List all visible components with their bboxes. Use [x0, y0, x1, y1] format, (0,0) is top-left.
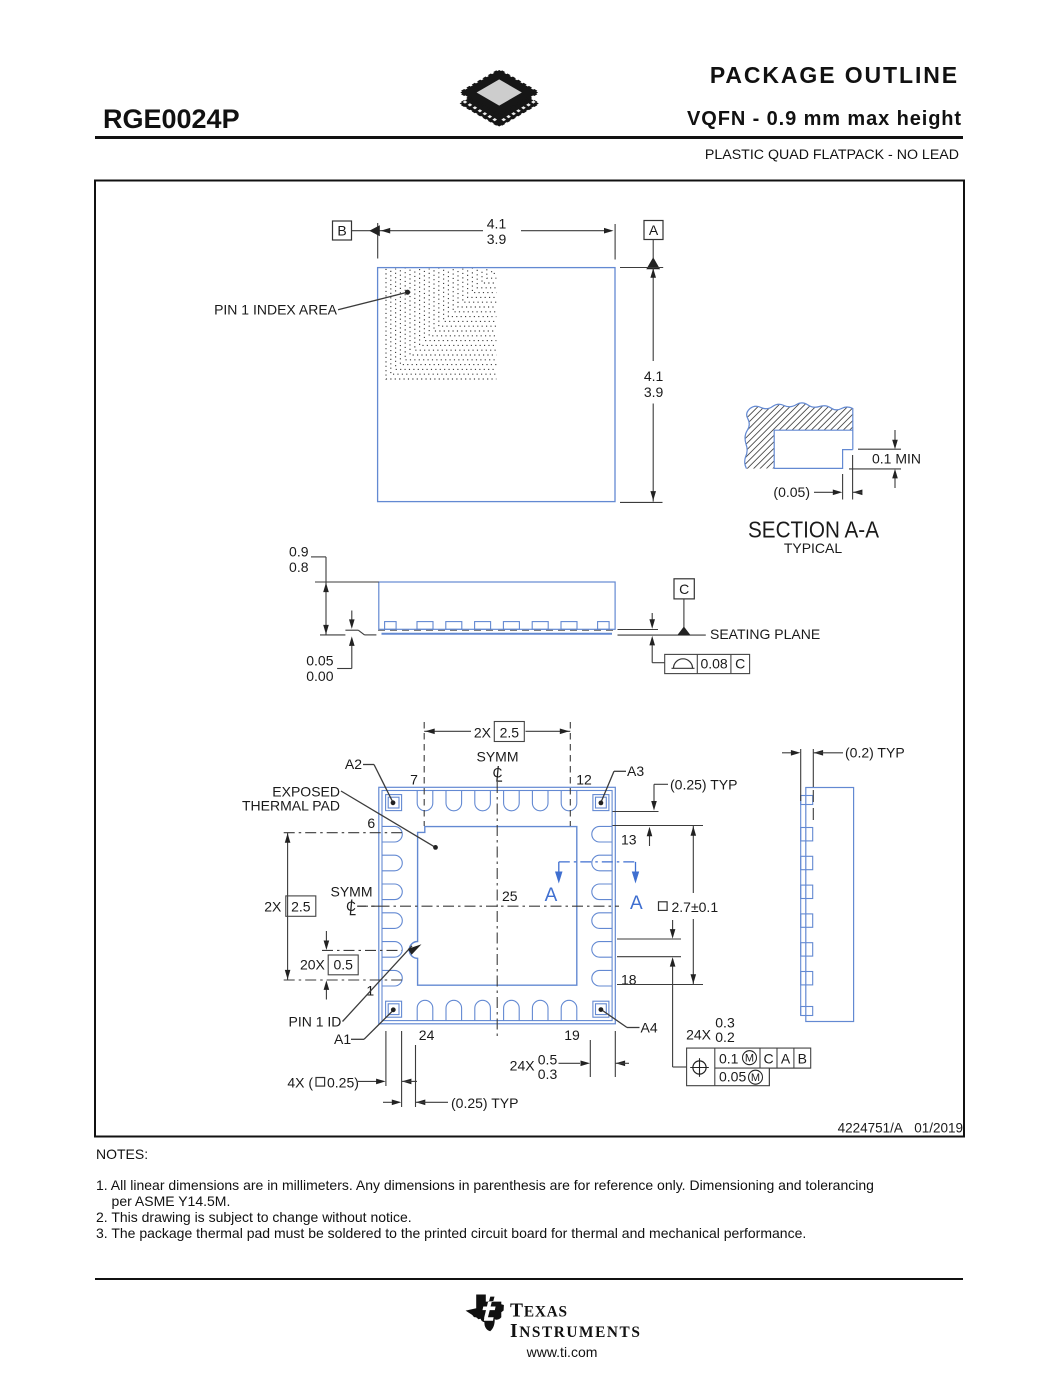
svg-text:SYMM: SYMM — [477, 749, 519, 765]
svg-text:A2: A2 — [345, 756, 362, 772]
svg-text:PIN 1 ID: PIN 1 ID — [288, 1014, 341, 1030]
svg-text:TYPICAL: TYPICAL — [784, 540, 843, 556]
svg-text:(0.2) TYP: (0.2) TYP — [845, 744, 905, 760]
svg-text:0.08: 0.08 — [700, 656, 727, 672]
svg-text:SEATING PLANE: SEATING PLANE — [710, 626, 820, 642]
svg-text:24: 24 — [419, 1027, 435, 1043]
svg-text:SYMM: SYMM — [331, 883, 373, 899]
svg-text:24X: 24X — [510, 1057, 536, 1073]
svg-text:0.00: 0.00 — [306, 668, 333, 684]
svg-text:THERMAL PAD: THERMAL PAD — [242, 798, 340, 814]
svg-text:4224751/A 01/2019: 4224751/A 01/2019 — [838, 1120, 963, 1135]
svg-text:0.25): 0.25) — [327, 1075, 359, 1091]
svg-text:0.8: 0.8 — [289, 559, 309, 575]
svg-text:C: C — [679, 581, 689, 597]
svg-text:2.5: 2.5 — [500, 725, 520, 741]
svg-text:A1: A1 — [334, 1031, 351, 1047]
svg-text:C: C — [763, 1050, 773, 1066]
svg-text:6: 6 — [367, 815, 375, 831]
svg-text:B: B — [337, 223, 346, 239]
svg-text:0.2: 0.2 — [715, 1029, 735, 1045]
svg-text:0.9: 0.9 — [289, 544, 309, 560]
svg-text:2.7±0.1: 2.7±0.1 — [672, 899, 719, 915]
svg-text:2X: 2X — [474, 725, 492, 741]
svg-text:A3: A3 — [627, 763, 644, 779]
svg-text:C: C — [735, 656, 745, 672]
svg-text:M: M — [745, 1053, 754, 1065]
svg-text:SECTION A-A: SECTION A-A — [748, 517, 880, 543]
svg-text:2X: 2X — [264, 898, 282, 914]
svg-text:INSTRUMENTS: INSTRUMENTS — [510, 1321, 641, 1342]
svg-text:0.5: 0.5 — [333, 957, 353, 973]
svg-text:M: M — [751, 1072, 760, 1084]
svg-text:(0.25) TYP: (0.25) TYP — [451, 1095, 518, 1111]
svg-text:20X: 20X — [300, 957, 326, 973]
svg-text:19: 19 — [564, 1027, 580, 1043]
svg-text:0.1 MIN: 0.1 MIN — [872, 450, 921, 466]
svg-text:(0.05): (0.05) — [773, 484, 810, 500]
svg-text:4.1: 4.1 — [644, 368, 664, 384]
svg-text:13: 13 — [621, 832, 637, 848]
svg-text:A4: A4 — [641, 1020, 658, 1036]
svg-text:0.05: 0.05 — [719, 1069, 746, 1085]
svg-text:0.05: 0.05 — [306, 652, 333, 668]
svg-text:2.5: 2.5 — [291, 898, 311, 914]
svg-text:12: 12 — [576, 771, 592, 787]
svg-text:A: A — [649, 222, 659, 238]
svg-text:7: 7 — [410, 771, 418, 787]
svg-text:B: B — [798, 1050, 807, 1066]
svg-text:24X: 24X — [686, 1026, 712, 1042]
svg-text:4.1: 4.1 — [487, 215, 507, 231]
svg-text:25: 25 — [502, 888, 518, 904]
svg-text:3.9: 3.9 — [487, 231, 507, 247]
svg-text:0.1: 0.1 — [719, 1050, 739, 1066]
svg-text:4X (: 4X ( — [287, 1075, 313, 1091]
svg-text:PIN 1 INDEX AREA: PIN 1 INDEX AREA — [214, 302, 338, 318]
svg-text:A: A — [630, 893, 643, 914]
svg-text:(0.25) TYP: (0.25) TYP — [670, 777, 737, 793]
svg-text:A: A — [781, 1050, 791, 1066]
svg-text:TEXAS: TEXAS — [510, 1301, 568, 1322]
svg-text:3.9: 3.9 — [644, 384, 664, 400]
svg-text:A: A — [545, 885, 558, 906]
svg-text:0.3: 0.3 — [538, 1066, 558, 1082]
